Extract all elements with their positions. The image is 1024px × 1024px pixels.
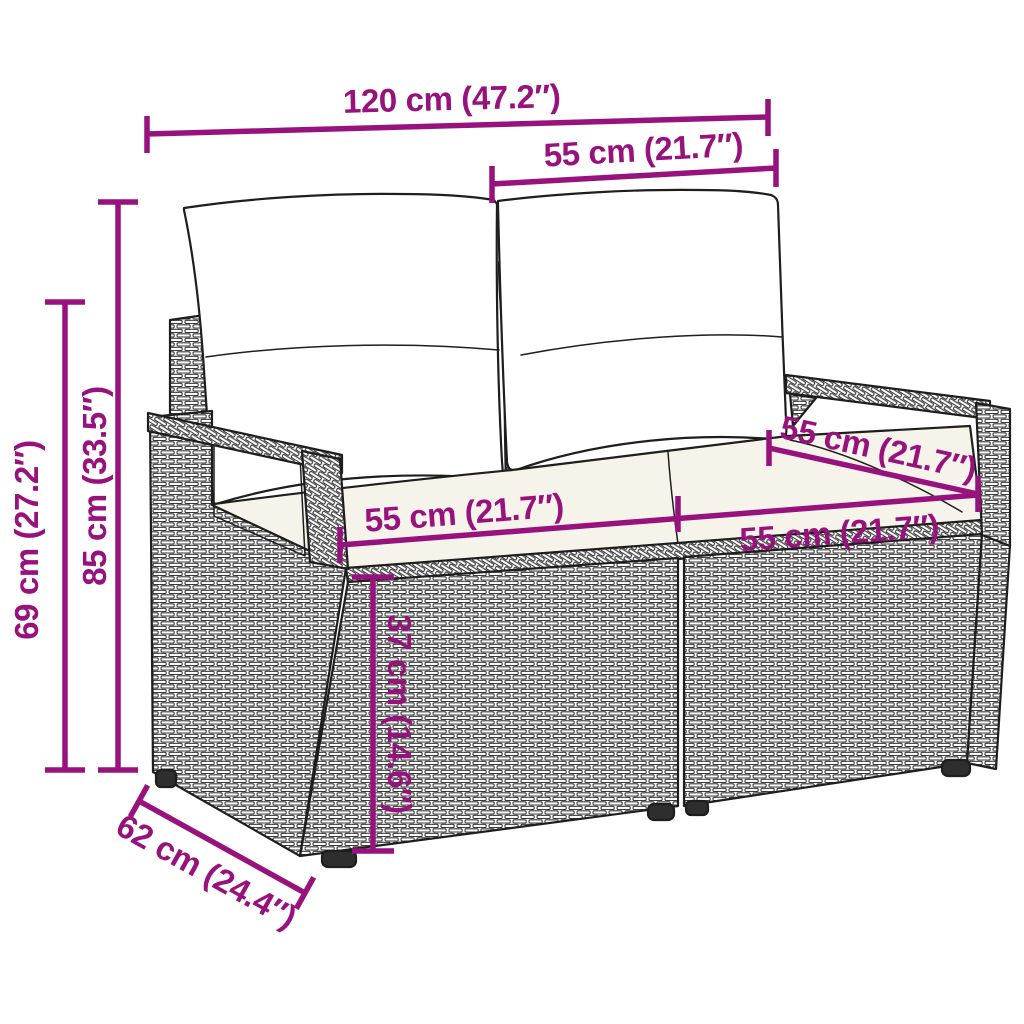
- foot-front-right: [942, 760, 970, 776]
- base-front-right-module: [684, 534, 982, 806]
- foot-mid-left: [648, 804, 674, 820]
- back-cushion-right: [498, 190, 786, 470]
- foot-front-left: [322, 851, 356, 867]
- foot-mid-right: [686, 801, 708, 815]
- base-front-left-module: [300, 558, 678, 856]
- dimension-seat-width-top-label: 55 cm (21.7″): [543, 125, 744, 173]
- back-cushion-right-body: [498, 190, 786, 470]
- dimension-armrest-height: 69 cm (27.2″): [8, 302, 85, 770]
- product-dimension-diagram: 120 cm (47.2″) 55 cm (21.7″) 85 cm (33.5…: [0, 0, 1024, 1024]
- back-cushion-left-body: [184, 194, 503, 504]
- right-arm-rail: [786, 375, 990, 419]
- dimension-back-height: 85 cm (33.5″): [76, 202, 138, 770]
- dimension-seat-height-label: 37 cm (14.6″): [381, 614, 418, 814]
- dimension-back-height-label: 85 cm (33.5″): [76, 386, 113, 586]
- dimension-overall-width-label: 120 cm (47.2″): [342, 77, 560, 120]
- right-arm-outer-post: [976, 403, 1010, 546]
- foot-rear-left: [156, 770, 176, 787]
- back-cushion-left: [184, 194, 503, 504]
- dimension-armrest-height-label: 69 cm (27.2″): [8, 440, 45, 640]
- diagram-canvas: 120 cm (47.2″) 55 cm (21.7″) 85 cm (33.5…: [0, 0, 1024, 1024]
